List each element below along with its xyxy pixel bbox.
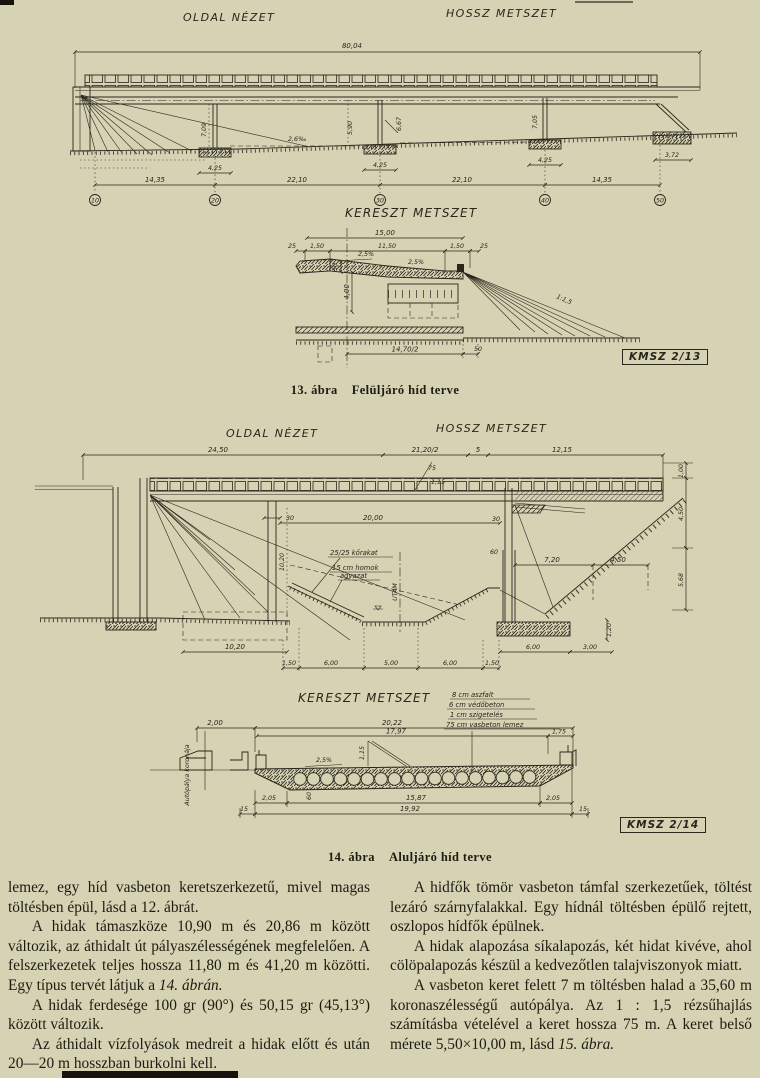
fig14-elevation: OLDAL NÉZET HOSSZ METSZET 24,50 21,20/2 …: [35, 422, 693, 672]
figure-13-caption-title: Felüljáró híd terve: [352, 383, 460, 397]
svg-text:2,05: 2,05: [546, 795, 560, 802]
svg-text:1,00: 1,00: [678, 464, 685, 478]
fig14-crown-label: Autópálya koronája: [183, 744, 191, 806]
fig14-cs-fall: 2,5%: [316, 757, 332, 764]
svg-text:2,05: 2,05: [262, 795, 276, 802]
svg-text:6,00: 6,00: [443, 660, 457, 667]
fig13-right-abutment: 3,72: [653, 104, 691, 160]
paragraph: Az áthidalt vízfolyások medreit a hidak …: [8, 1035, 370, 1074]
fig14-note-sand: ágyazat: [340, 572, 367, 580]
fig14-pier-height-dim: 10,20: [279, 553, 286, 571]
svg-text:1,50: 1,50: [485, 660, 499, 667]
fig14-wall-dim: 60: [490, 549, 498, 556]
fig14-kerb-dim: 75: [428, 465, 436, 472]
fig14-cross-section: KERESZT METSZET 8 cm aszfalt 6 cm védőbe…: [150, 691, 588, 818]
fig13-span-dim: 14,35: [145, 176, 166, 184]
paragraph: A vasbeton keret felett 7 m töltésben ha…: [390, 976, 752, 1054]
fig13-elevation: OLDAL NÉZET HOSSZ METSZET 80,04 2,6‰ 4,: [70, 7, 737, 206]
fig14-top-dim: 5: [476, 446, 481, 454]
fig13-cs-fall: 2,5%: [408, 259, 424, 266]
fig13-cs-slab: 50: [332, 263, 339, 271]
fig13-side-view-label: OLDAL NÉZET: [183, 11, 275, 24]
fig14-bottom-dims: 1,50 6,00 5,00 6,00 1,50: [282, 628, 499, 672]
fig14-cross-section-label: KERESZT METSZET: [298, 691, 431, 705]
fig13-span-dim: 22,10: [452, 176, 473, 184]
fig13-cs-dim: 25: [288, 243, 296, 250]
figure-13-caption-number: 13. ábra: [291, 383, 338, 397]
svg-text:8 cm aszfalt: 8 cm aszfalt: [452, 691, 494, 699]
fig13-long-section-label: HOSSZ METSZET: [446, 7, 557, 20]
fig14-right-wall: 30 60 6,00 3,00 1,20: [490, 488, 613, 652]
fig14-long-section-label: HOSSZ METSZET: [436, 422, 547, 435]
paragraph: lemez, egy híd vasbeton keretszerkezetű,…: [8, 878, 370, 917]
fig14-crown-detail: Autópálya koronája: [150, 731, 255, 807]
drawing-stamp-kmsz-2-13: KMSZ 2/13: [622, 349, 708, 365]
body-text: lemez, egy híd vasbeton keretszerkezetű,…: [8, 878, 752, 1074]
fig13-cs-dim: 11,50: [378, 243, 396, 250]
fig13-span-dim: 14,35: [592, 176, 613, 184]
paragraph: A hidak ferdesége 100 gr (90°) és 50,15 …: [8, 996, 370, 1035]
fig13-cross-section: KERESZT METSZET 15,00 25 1,50 11,50 1,50…: [288, 206, 640, 368]
svg-text:10: 10: [91, 198, 99, 205]
fig14-cs-dim: 17,97: [386, 728, 407, 736]
fig13-grade-label: 2,6‰: [288, 136, 307, 143]
figure-14-caption-title: Aluljáró híd terve: [389, 850, 492, 864]
fig14-clear-span: 20,00: [363, 514, 384, 522]
figure-14-caption-number: 14. ábra: [328, 850, 375, 864]
paragraph: A hidfők tömör vasbeton támfal szerkezet…: [390, 878, 752, 937]
fig13-cs-height: 4,00: [343, 284, 351, 300]
svg-text:50: 50: [656, 198, 664, 205]
fig13-cs-fall: 2,5%: [358, 251, 374, 258]
fig14-cs-thickness: 60: [306, 792, 313, 800]
figure-reference: 14. ábrán.: [159, 977, 223, 994]
fig14-layer-notes: 8 cm aszfalt 6 cm védőbeton 1 cm szigete…: [444, 691, 560, 772]
svg-text:20: 20: [211, 198, 219, 205]
svg-text:5,00: 5,00: [384, 660, 398, 667]
svg-text:4,50: 4,50: [678, 507, 685, 521]
fig14-top-dim: 24,50: [208, 446, 229, 454]
fig14-middle-pier: 30 10,20 10,20: [183, 501, 294, 652]
fig14-cs-dim: 1,75: [552, 729, 566, 736]
fig14-deck-slab: [255, 745, 576, 790]
fig13-span-dim: 22,10: [287, 176, 308, 184]
fig13-pier-30: 4,25 5,90 6,67: [347, 100, 403, 170]
fig13-cs-slope: 1:1,5: [555, 293, 573, 306]
fig14-wall-dim: 30: [492, 516, 500, 523]
fig13-pier-height: 7,09: [201, 123, 208, 137]
paragraph: A hidak alapozása síkalapozás, két hidat…: [390, 937, 752, 976]
fig13-cs-dim: 25: [480, 243, 488, 250]
fig14-top-dim: 12,15: [552, 446, 573, 454]
fig14-dim-720: 7,20: [544, 556, 560, 564]
figure-reference: 15. ábra.: [558, 1036, 614, 1053]
svg-text:15,87: 15,87: [406, 794, 427, 802]
fig14-rfooting-dim: 3,00: [583, 644, 597, 651]
figure-13-caption: 13. ábraFelüljáró híd terve: [160, 383, 590, 398]
fig14-note-sand: 15 cm homok: [332, 564, 380, 572]
drawing-stamp-kmsz-2-14: KMSZ 2/14: [620, 817, 706, 833]
fig14-footing-width: 10,20: [225, 643, 246, 651]
bridge-drawings: OLDAL NÉZET HOSSZ METSZET 80,04 2,6‰ 4,: [0, 0, 760, 875]
fig13-left-abutment-fan: [80, 95, 310, 168]
paragraph: A hidak támaszköze 10,90 m és 20,86 m kö…: [8, 917, 370, 995]
fig14-top-dim: 21,20/2: [412, 446, 439, 454]
svg-text:5,68: 5,68: [678, 573, 685, 587]
svg-text:19,92: 19,92: [400, 805, 421, 813]
fig14-road-axis-label: UTAM: [392, 583, 399, 601]
fig14-cs-strut: 1,15: [359, 746, 366, 760]
fig13-total-length: 80,04: [342, 42, 362, 50]
fig13-cross-section-label: KERESZT METSZET: [345, 206, 478, 220]
svg-text:1 cm szigetelés: 1 cm szigetelés: [450, 711, 503, 719]
fig13-right-footing-dim: 3,72: [665, 152, 679, 159]
fig13-cs-dim: 1,50: [310, 243, 324, 250]
svg-text:1,50: 1,50: [282, 660, 296, 667]
fig13-cs-total: 15,00: [375, 229, 396, 237]
svg-text:40: 40: [541, 198, 549, 205]
fig14-note-stone: 25/25 kőrakat: [330, 548, 378, 557]
fig14-right-heights: 1,00 4,50 5,68: [663, 463, 693, 610]
text-column-left: lemez, egy híd vasbeton keretszerkezetű,…: [8, 878, 370, 1074]
scan-artifact-corner: [0, 0, 14, 5]
fig14-cs-dim: 2,00: [207, 719, 223, 727]
svg-text:15: 15: [240, 806, 248, 813]
text-column-right: A hidfők tömör vasbeton támfal szerkezet…: [390, 878, 752, 1074]
svg-text:6 cm védőbeton: 6 cm védőbeton: [449, 700, 504, 709]
figure-14-caption: 14. ábraAluljáró híd terve: [180, 850, 640, 865]
scan-artifact-bar: [62, 1071, 238, 1078]
fig14-footing-depth: 1,20: [606, 623, 613, 637]
fig13-pier-height: 7,05: [532, 115, 539, 129]
fig14-cs-dim: 20,22: [382, 719, 403, 727]
svg-text:15: 15: [579, 806, 587, 813]
fig13-cs-halfwidth: 14,70/2: [392, 346, 419, 354]
fig13-cs-dim: 1,50: [450, 243, 464, 250]
svg-text:30: 30: [376, 198, 384, 205]
fig13-support-numbers: 10 20 30 40 50: [90, 195, 666, 206]
svg-text:6,00: 6,00: [324, 660, 338, 667]
fig13-pier-height: 6,67: [396, 117, 403, 131]
scanned-book-page: OLDAL NÉZET HOSSZ METSZET 80,04 2,6‰ 4,: [0, 0, 760, 1078]
fig14-rfooting-dim: 6,00: [526, 644, 540, 651]
fig14-side-view-label: OLDAL NÉZET: [226, 427, 318, 440]
fig13-cs-slope-fan: [463, 272, 625, 338]
scan-artifact-top: [575, 1, 633, 3]
